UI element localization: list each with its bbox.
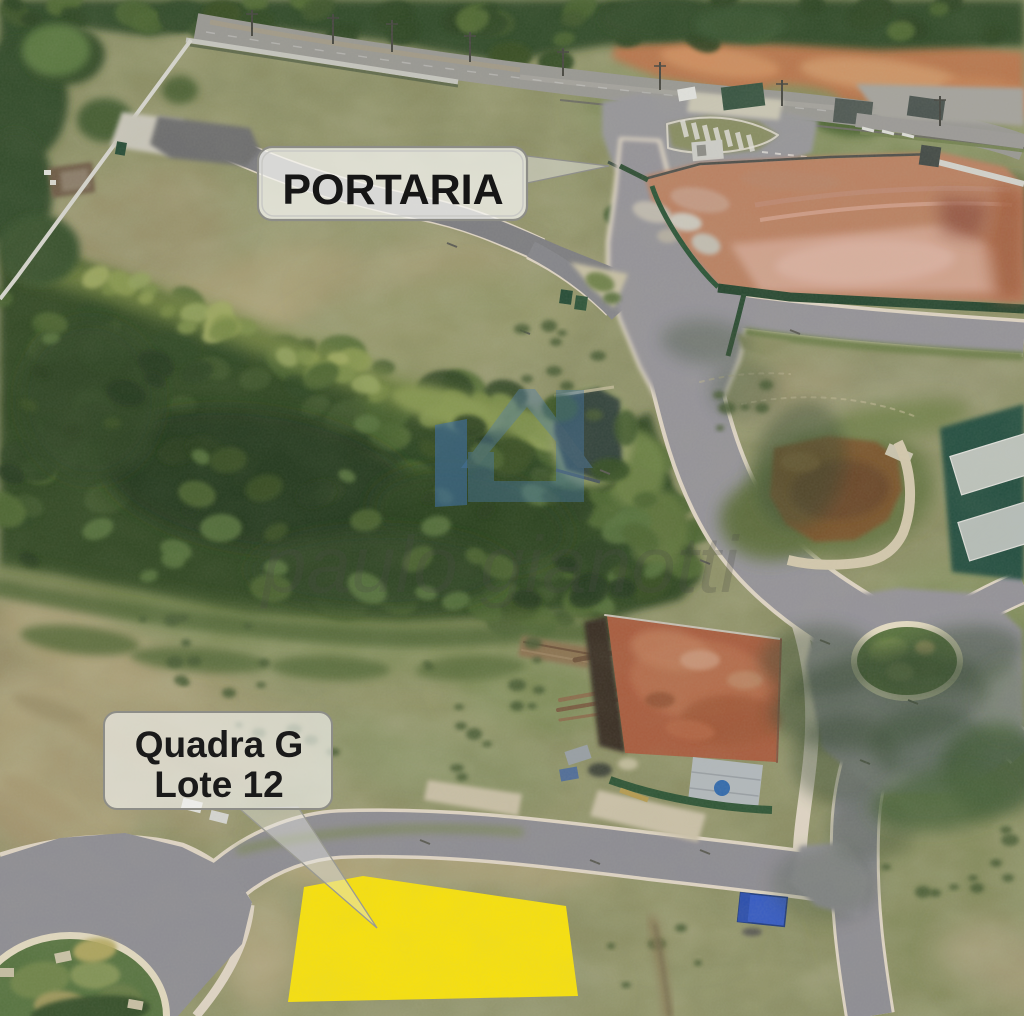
svg-text:paulo gianotti: paulo gianotti [260,520,740,609]
svg-text:Lote 12: Lote 12 [154,764,284,805]
svg-text:Quadra G: Quadra G [135,724,304,765]
svg-text:PORTARIA: PORTARIA [282,166,503,214]
